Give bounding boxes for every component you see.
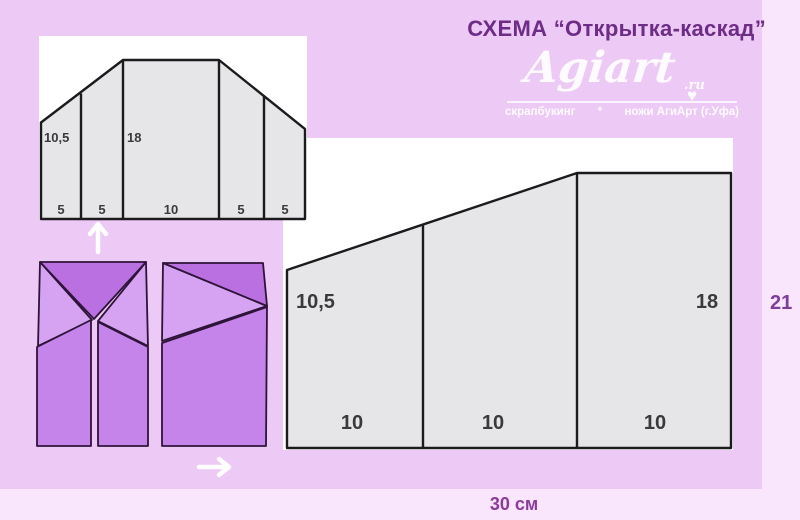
segment-width-label: 5: [237, 203, 244, 216]
segment-width-label: 10: [164, 203, 178, 216]
height-label: 10,5: [44, 131, 69, 144]
tagline-right: ножи АгиАрт (г.Уфа): [624, 106, 739, 118]
height-label: 10,5: [296, 292, 335, 312]
heart-icon: ♥: [687, 86, 697, 106]
panel-card-outline: [287, 173, 731, 448]
tagline-separator: *: [598, 106, 602, 118]
logo-wordmark: Agiart: [498, 47, 703, 90]
tagline-left: скрапбукинг: [505, 106, 575, 118]
arrow-right-icon: [199, 459, 229, 475]
segment-width-label: 10: [341, 413, 363, 433]
unfolded-card-diagram: [41, 60, 305, 219]
height-label: 18: [127, 131, 141, 144]
height-label: 18: [696, 292, 718, 312]
segment-width-label: 5: [57, 203, 64, 216]
segment-width-label: 5: [281, 203, 288, 216]
arrow-up-icon: [90, 224, 106, 252]
logo-tagline: скрапбукинг * ножи АгиАрт (г.Уфа): [505, 106, 739, 118]
sheet-height-label: 21: [770, 292, 792, 315]
segment-width-label: 5: [98, 203, 105, 216]
segment-width-label: 10: [644, 413, 666, 433]
folded-card-side-view: [162, 263, 267, 446]
schema-page: { "page": { "title": "СХЕМА “Открытка-ка…: [0, 0, 800, 520]
folded-card-front-view: [37, 262, 148, 446]
panel-card-diagram: [287, 173, 731, 448]
segment-width-label: 10: [482, 413, 504, 433]
logo-divider: [507, 101, 737, 103]
sheet-width-label: 30 см: [490, 494, 538, 515]
page-title: СХЕМА “Открытка-каскад”: [430, 16, 766, 42]
